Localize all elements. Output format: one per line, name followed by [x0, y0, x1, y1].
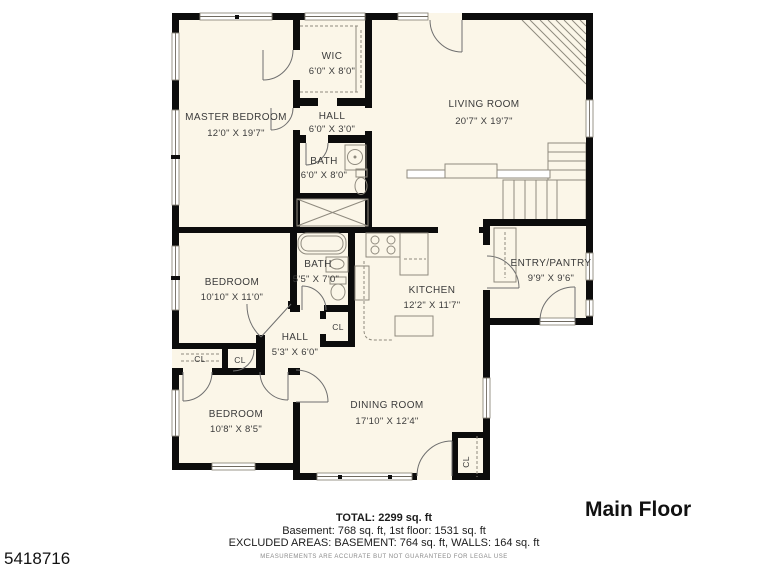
svg-text:6'0" X 3'0": 6'0" X 3'0"	[309, 124, 355, 135]
footer-disclaimer: MEASUREMENTS ARE ACCURATE BUT NOT GUARAN…	[0, 554, 768, 560]
svg-text:MASTER BEDROOM: MASTER BEDROOM	[185, 112, 287, 123]
svg-text:WIC: WIC	[322, 51, 343, 62]
listing-id: 5418716	[4, 549, 70, 569]
svg-text:HALL: HALL	[282, 332, 309, 343]
floor-title: Main Floor	[585, 498, 691, 522]
closet-label: CL	[332, 322, 343, 332]
svg-text:12'0" X 19'7": 12'0" X 19'7"	[207, 128, 265, 139]
svg-text:6'0" X 8'0": 6'0" X 8'0"	[301, 170, 347, 181]
svg-text:BATH: BATH	[304, 259, 332, 270]
svg-text:LIVING ROOM: LIVING ROOM	[448, 99, 519, 110]
svg-text:BEDROOM: BEDROOM	[205, 277, 259, 288]
svg-text:9'9" X 9'6": 9'9" X 9'6"	[528, 273, 574, 284]
closet-label: CL	[234, 355, 245, 365]
footer-areas: Basement: 768 sq. ft, 1st floor: 1531 sq…	[0, 525, 768, 538]
svg-text:BATH: BATH	[310, 156, 338, 167]
floor-plan-drawing: MASTER BEDROOM 12'0" X 19'7" WIC 6'0" X …	[0, 0, 768, 495]
svg-text:5'5" X 7'0": 5'5" X 7'0"	[293, 274, 339, 285]
svg-text:BEDROOM: BEDROOM	[209, 409, 263, 420]
svg-text:DINING ROOM: DINING ROOM	[350, 400, 423, 411]
svg-text:17'10" X 12'4": 17'10" X 12'4"	[355, 416, 418, 427]
footer-excluded: EXCLUDED AREAS: BASEMENT: 764 sq. ft, WA…	[0, 537, 768, 550]
svg-text:ENTRY/PANTRY: ENTRY/PANTRY	[511, 258, 592, 269]
closet-label: CL	[194, 354, 205, 364]
svg-text:5'3" X 6'0": 5'3" X 6'0"	[272, 347, 318, 358]
svg-text:10'10" X 11'0": 10'10" X 11'0"	[201, 292, 263, 303]
closet-label: CL	[461, 456, 471, 467]
svg-text:KITCHEN: KITCHEN	[409, 285, 456, 296]
svg-text:12'2" X 11'7": 12'2" X 11'7"	[404, 300, 461, 311]
svg-text:10'8" X 8'5": 10'8" X 8'5"	[210, 424, 262, 435]
svg-text:20'7" X 19'7": 20'7" X 19'7"	[455, 116, 513, 127]
svg-text:HALL: HALL	[319, 111, 346, 122]
svg-text:6'0" X 8'0": 6'0" X 8'0"	[309, 66, 355, 77]
floor-plan-page: MASTER BEDROOM 12'0" X 19'7" WIC 6'0" X …	[0, 0, 768, 576]
